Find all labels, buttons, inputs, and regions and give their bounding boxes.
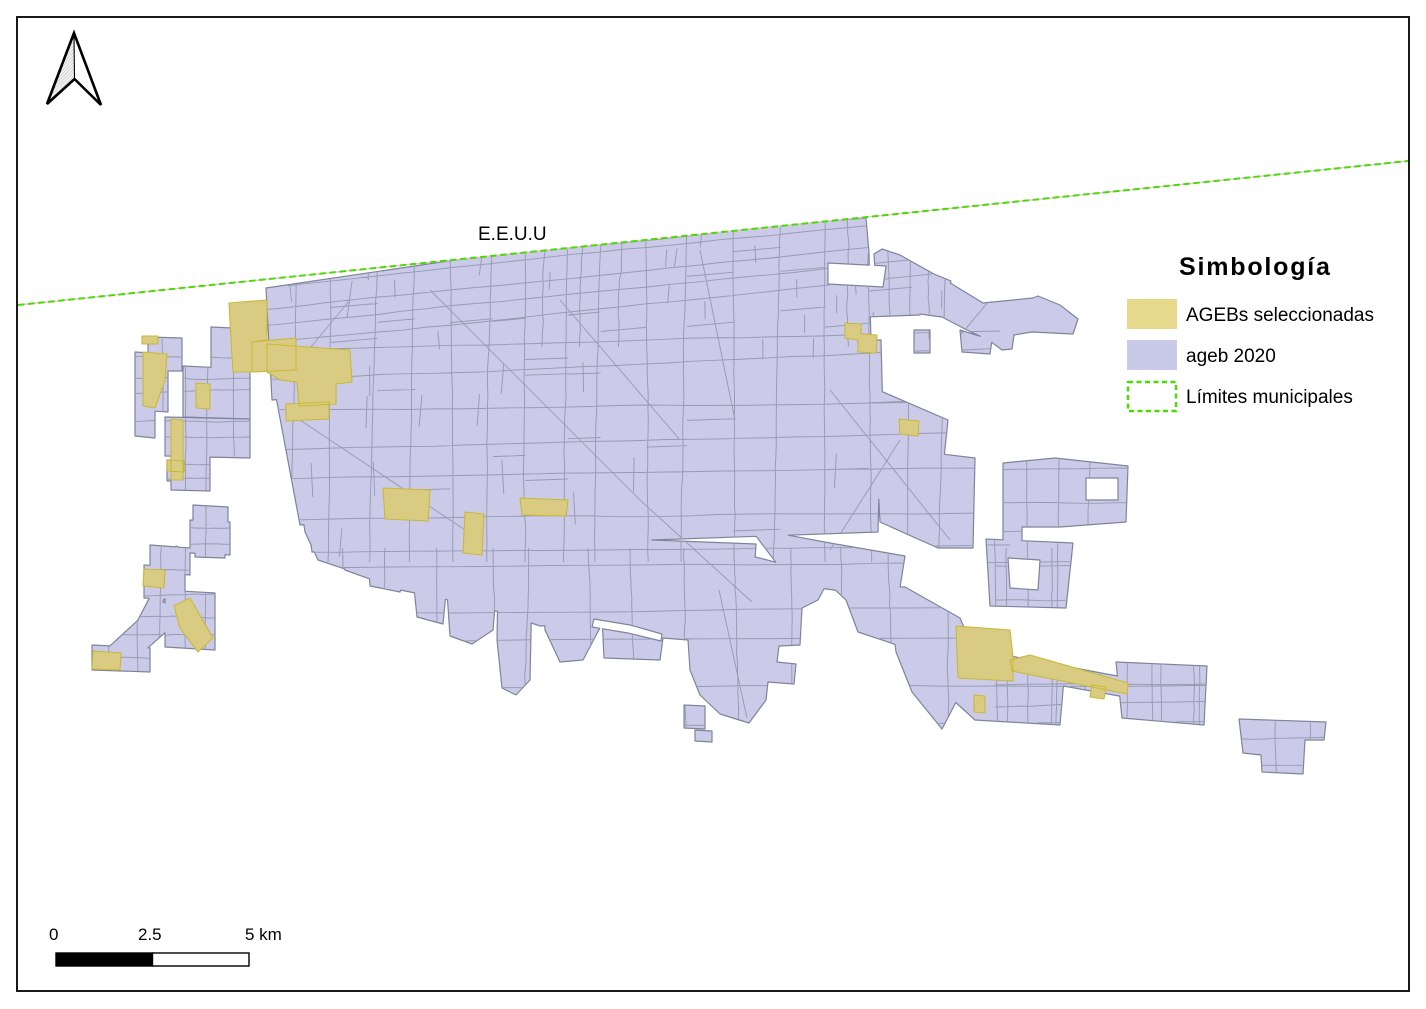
svg-text:2.5: 2.5	[138, 925, 162, 944]
svg-text:Límites municipales: Límites municipales	[1186, 387, 1353, 408]
svg-text:ageb 2020: ageb 2020	[1186, 346, 1276, 367]
svg-text:E.E.U.U: E.E.U.U	[478, 224, 547, 245]
svg-text:Simbología: Simbología	[1179, 253, 1332, 281]
svg-text:AGEBs seleccionadas: AGEBs seleccionadas	[1186, 305, 1374, 326]
svg-text:5 km: 5 km	[245, 925, 282, 944]
svg-text:0: 0	[49, 925, 58, 944]
